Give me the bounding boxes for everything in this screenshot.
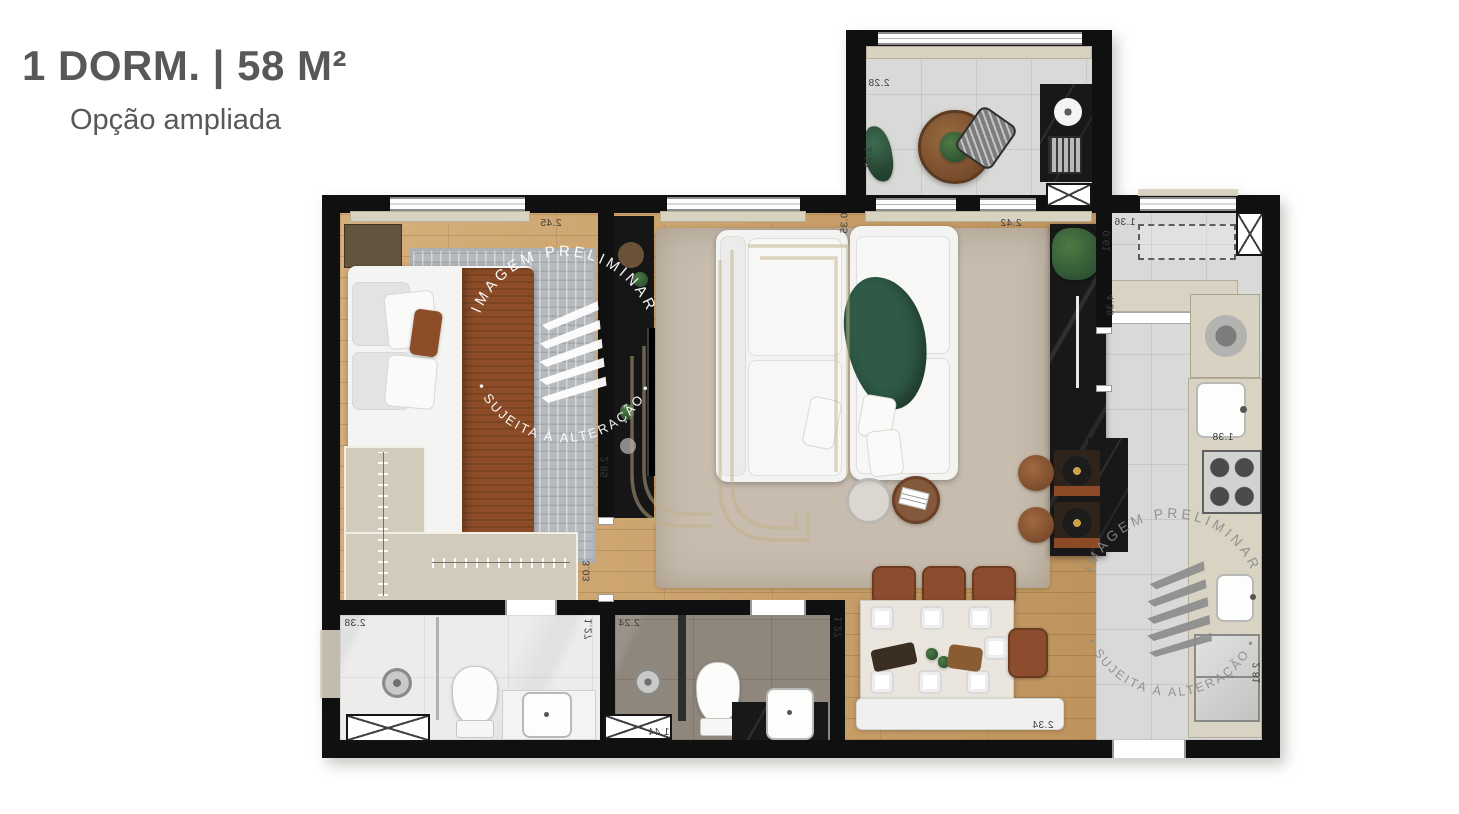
plate (920, 606, 944, 630)
closet-rod (383, 452, 384, 596)
bed-pillow (384, 354, 438, 410)
watermark-arc-top: IMAGEM PRELIMINAR (1080, 505, 1264, 574)
dimension-label-bathroom2: 1.44 (648, 727, 669, 738)
plate (918, 670, 942, 694)
page: 1 DORM. | 58 M² Opção ampliada (0, 0, 1459, 814)
laundry-overhead-cabinet (1138, 224, 1236, 260)
dimension-label-laundry: 0.61 (1102, 231, 1113, 265)
duct-shaft (1236, 212, 1264, 256)
bathroom-faucet (544, 712, 549, 717)
dining-chair (1008, 628, 1048, 678)
watermark-chevron-logo (1140, 561, 1213, 657)
place-setting-plate (1062, 456, 1092, 486)
bathroom1-door-opening (505, 600, 557, 615)
floor-plan: 2.28 1.19 2.45 0.35 2.42 2.85 3.03 1.36 … (0, 0, 1459, 814)
dimension-label-living: 2.42 (1000, 218, 1021, 229)
dimension-label-bathroom1: 1.27 (584, 619, 595, 653)
dimension-label-bathroom2: 1.27 (834, 617, 845, 651)
bar-stool (1018, 455, 1054, 491)
balcony-window (878, 32, 1082, 45)
closet-rod (432, 562, 570, 563)
dimension-label-kitchen: 4.38 (1106, 295, 1117, 329)
toilet-tank (700, 718, 736, 736)
balcony-sill (866, 46, 1092, 59)
window-sill (350, 211, 530, 222)
island-plant-monstera (1052, 228, 1102, 280)
dimension-label-bathroom1: 2.38 (344, 618, 365, 629)
dimension-label-laundry: 1.36 (1114, 217, 1135, 228)
exterior-finish-patch (320, 630, 340, 698)
window-sill (660, 211, 806, 222)
balcony-slider-door (980, 198, 1036, 211)
bedroom-window (390, 197, 525, 211)
plate (870, 670, 894, 694)
door-jamb (1096, 385, 1112, 392)
toilet (452, 666, 498, 724)
washer-door (1205, 315, 1247, 357)
bathroom2-door-opening (750, 600, 806, 615)
svg-text:IMAGEM PRELIMINAR: IMAGEM PRELIMINAR (1080, 505, 1264, 574)
shower-head (382, 668, 412, 698)
plate (968, 606, 992, 630)
plate (984, 636, 1008, 660)
toilet-tank (456, 720, 494, 738)
closet-hangers (432, 558, 570, 568)
preliminary-watermark-primary: IMAGEM PRELIMINAR • SUJEITA À ALTERAÇÃO … (450, 232, 678, 460)
table-greens (926, 648, 938, 660)
watermark-arc-top: IMAGEM PRELIMINAR (468, 243, 660, 315)
dimension-label-hall: 3.03 (582, 561, 593, 595)
door-jamb (598, 594, 614, 602)
kitchen-faucet (1240, 406, 1247, 413)
dimension-label-balcony: 1.19 (864, 147, 875, 181)
balcony-slider-door (876, 198, 956, 211)
island-faucet (1076, 296, 1079, 388)
dimension-label-bedroom: 2.45 (540, 218, 561, 229)
watermark-chevron-logo (532, 301, 608, 403)
duct-shaft (346, 714, 430, 742)
kitchen-sink (1196, 382, 1246, 438)
dimension-label-bathroom2: 2.24 (618, 618, 639, 629)
balcony-grill (1048, 136, 1082, 174)
exterior-finish-patch (1138, 189, 1238, 196)
dimension-label-kitchen: 1.38 (1212, 432, 1233, 443)
balcony-wall-right (1092, 30, 1112, 197)
window-sill (865, 211, 1092, 222)
serving-board (946, 644, 983, 672)
dimension-label-dining: 2.34 (1032, 720, 1053, 731)
dimension-label-balcony: 2.28 (868, 78, 889, 89)
plate (966, 670, 990, 694)
plate (870, 606, 894, 630)
sofa-pillow (865, 428, 904, 478)
shower-head (634, 668, 662, 696)
entry-door-opening (1112, 740, 1186, 758)
living-window (667, 197, 800, 211)
preliminary-watermark-secondary: IMAGEM PRELIMINAR • SUJEITA À ALTERAÇÃO … (1062, 494, 1282, 714)
duct-shaft (1046, 183, 1092, 207)
shower-glass (436, 617, 439, 720)
nightstand-top (344, 224, 402, 268)
bar-stool (1018, 507, 1054, 543)
shower-partition (678, 615, 686, 721)
balcony-sink (1054, 98, 1082, 126)
kitchen-window (1140, 197, 1236, 211)
svg-text:IMAGEM PRELIMINAR: IMAGEM PRELIMINAR (468, 243, 660, 315)
bathroom-faucet (787, 710, 792, 715)
